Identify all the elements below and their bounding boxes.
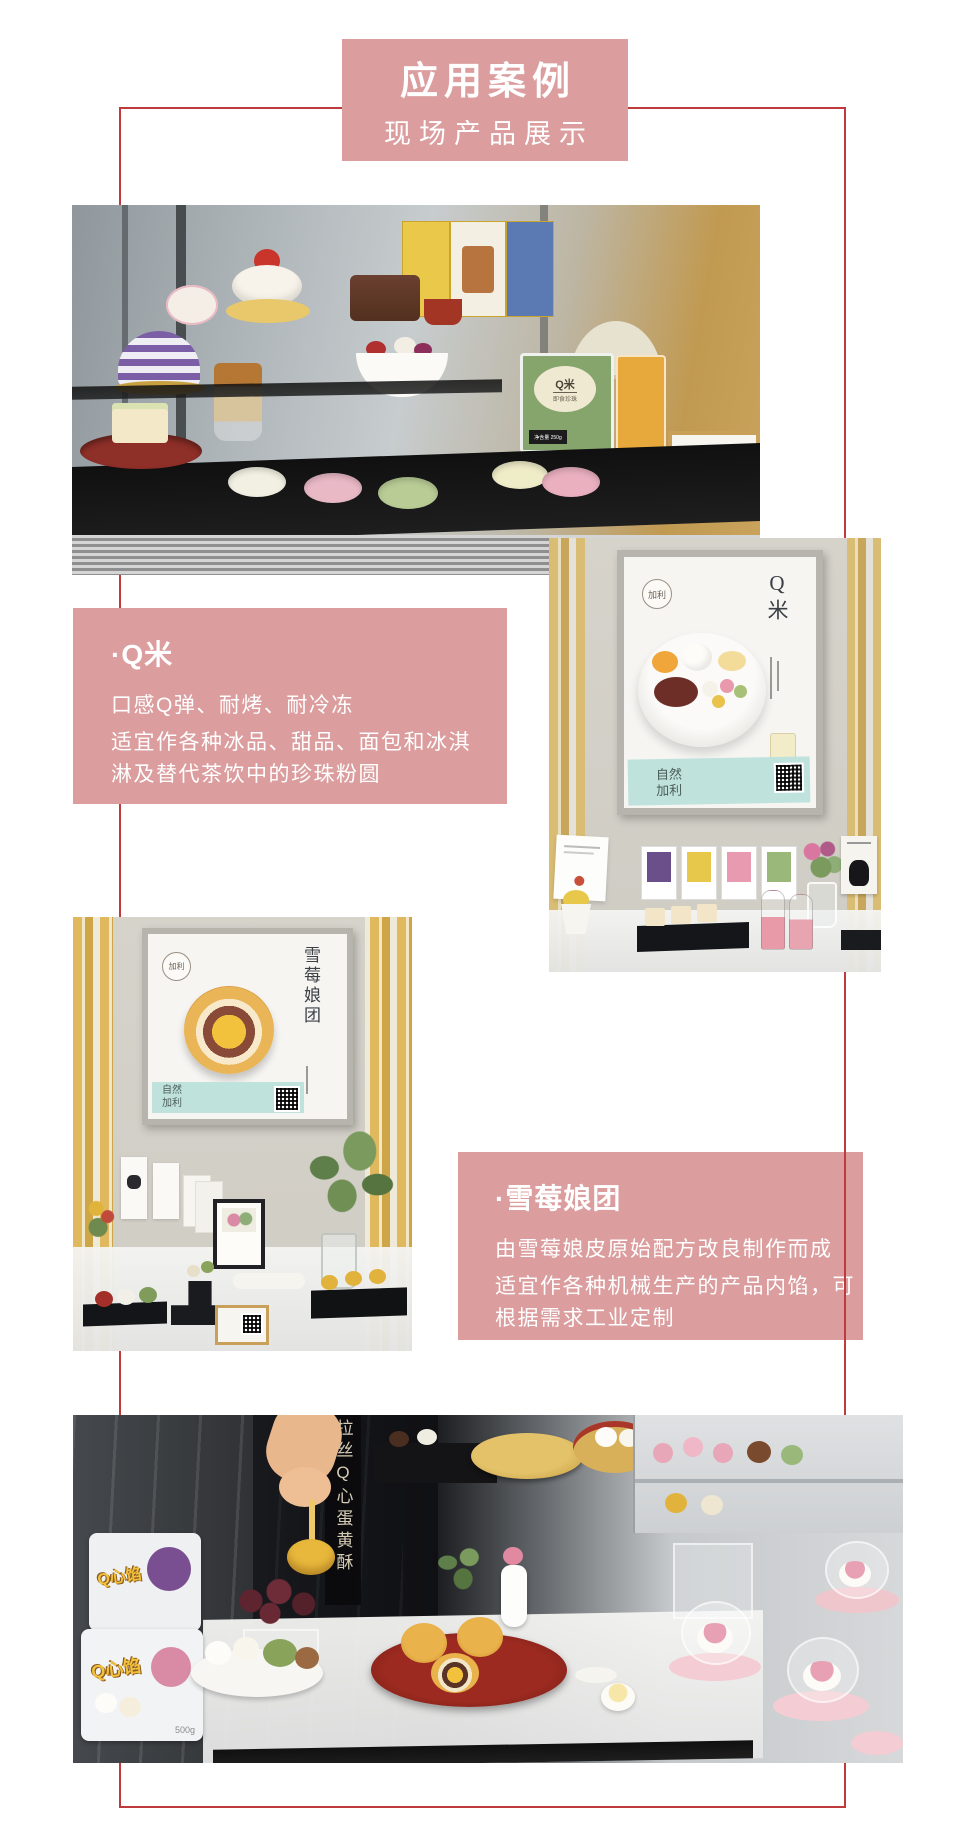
white-petit	[417, 1429, 437, 1445]
mochi-disc-pink	[304, 473, 362, 503]
mango-cubes	[652, 651, 678, 673]
gold-bread	[471, 1433, 583, 1479]
card-line	[564, 851, 594, 855]
pack-color	[647, 852, 671, 882]
pack-color	[727, 852, 751, 882]
flower-bouquet	[799, 836, 843, 888]
right-display-case	[633, 1415, 903, 1533]
white-mochi-ball	[205, 1641, 231, 1665]
package-swirl	[147, 1547, 191, 1591]
package-weight-tag: 净含量 250g	[529, 430, 567, 444]
package-oval-label: Q米 即食珍珠	[534, 366, 596, 412]
yellow-mini-cake	[345, 1271, 362, 1286]
case-shelf-line	[635, 1479, 903, 1483]
cake-pop	[713, 1443, 733, 1463]
dome-bun	[697, 1623, 733, 1653]
package2-weight: 500g	[175, 1725, 195, 1735]
pink-ball	[720, 679, 734, 693]
hanging-card	[121, 1157, 147, 1219]
green-plant	[289, 1123, 407, 1235]
red-mochi	[95, 1291, 113, 1307]
poster-title-text: 雪莓娘团	[301, 946, 320, 1026]
white-mochi-ball	[233, 1637, 259, 1661]
brand-logo: 加利	[162, 952, 191, 981]
qmi-description-block: ·Q米 口感Q弹、耐烤、耐冷冻 适宜作各种冰品、甜品、面包和冰淇淋及替代茶饮中的…	[73, 608, 507, 804]
cupcake-cup	[561, 904, 591, 934]
mascot-graphic	[849, 860, 869, 886]
page-subtitle: 现场产品展示	[376, 112, 594, 151]
pulled-bun	[287, 1539, 335, 1575]
band-slogan: 自然加利	[656, 767, 686, 800]
brand-logo: 加利	[642, 579, 672, 609]
screen-picture	[462, 246, 495, 293]
hanging-card	[153, 1163, 179, 1219]
yellow-ball	[712, 695, 725, 708]
page-header: 应用案例 现场产品展示	[342, 39, 628, 161]
package-sublabel-text: 即食珍珠	[553, 392, 577, 403]
chocolate-donut	[747, 1441, 771, 1463]
caramel-parfait	[214, 363, 262, 441]
qr-code	[274, 1086, 300, 1112]
pink-drink-glass	[789, 894, 813, 950]
page: 应用案例 现场产品展示	[0, 0, 964, 1846]
green-mochi	[139, 1287, 157, 1303]
hanging-pack-pink	[721, 846, 757, 900]
qxin-package-top: Q心馅	[89, 1533, 201, 1631]
cake-pop	[653, 1443, 673, 1463]
pack-color	[767, 852, 791, 882]
package-blob	[151, 1647, 191, 1687]
egg-yolk-pastry	[457, 1617, 503, 1657]
poster-teal-band: 自然加利	[152, 1082, 304, 1113]
black-tray-right	[311, 1287, 407, 1318]
skewer-ball	[201, 1261, 214, 1273]
bud-vase	[501, 1565, 527, 1627]
qxin-package-bottom: Q心馅 500g	[81, 1629, 203, 1741]
cube-cake	[671, 906, 691, 924]
choc-petit	[389, 1431, 409, 1447]
caption-bar	[306, 1066, 308, 1094]
ice-cream-ball	[682, 643, 712, 671]
mini-tart	[665, 1493, 687, 1513]
greenery-sprig	[429, 1541, 491, 1595]
sign-line	[847, 842, 871, 844]
wooden-qr-sign	[215, 1305, 269, 1345]
dome-bun	[803, 1661, 841, 1691]
cupcake	[559, 890, 593, 938]
package-mochi-graphic	[119, 1697, 141, 1717]
photo-qmi-poster-wall: 加利 Q米 自然加利	[549, 538, 881, 972]
poster-title-text: Q米	[765, 571, 789, 624]
qmi-poster-frame: 加利 Q米 自然加利	[617, 550, 823, 815]
dome-bun	[839, 1561, 871, 1587]
brown-mochi-ball	[295, 1647, 319, 1669]
black-tray-left	[83, 1302, 167, 1327]
pink-fan-tray	[851, 1731, 903, 1755]
board-photo	[222, 1208, 256, 1232]
green-ball	[734, 685, 747, 698]
sign-card	[218, 1308, 266, 1342]
mochi-bun-photo	[184, 986, 274, 1074]
mochi-disc-white	[228, 467, 286, 497]
package2-label: Q心馅	[89, 1652, 142, 1685]
sauce-dish	[575, 1667, 617, 1683]
brand-logo-text: 加利	[648, 588, 666, 601]
red-beans	[654, 677, 698, 707]
black-tray-cakes	[637, 922, 749, 952]
yellow-mini-cake	[369, 1269, 386, 1284]
cake-base	[226, 299, 310, 323]
package-label-text: Q米	[555, 376, 575, 392]
pack-color	[687, 852, 711, 882]
card-motif	[127, 1175, 141, 1189]
fruit-cake-slice	[112, 403, 168, 443]
small-white-bun	[601, 1683, 635, 1711]
pink-dot-cake	[166, 285, 218, 325]
xuemei-poster-frame: 加利 雪莓娘团 自然加利	[142, 928, 353, 1125]
qr-code	[774, 763, 805, 794]
skewer-ball	[187, 1265, 200, 1277]
chocolate-cake	[350, 275, 420, 321]
poster-title-vertical: Q米	[762, 571, 792, 651]
matcha-bun	[781, 1445, 803, 1465]
hand	[279, 1467, 331, 1507]
dessert-bowl-photo	[638, 633, 766, 747]
caption-bar	[770, 657, 772, 699]
matcha-mound	[263, 1639, 297, 1667]
photo-xuemei-poster-wall: 加利 雪莓娘团 自然加利	[73, 917, 412, 1351]
qmi-block-line2: 适宜作各种冰品、甜品、面包和冰淇淋及替代茶饮中的珍珠粉圆	[111, 727, 489, 791]
purple-striped-dessert	[118, 331, 200, 387]
qmi-block-title: ·Q米	[111, 638, 489, 672]
small-flower-arrangement	[81, 1195, 119, 1249]
cake-pop	[683, 1437, 703, 1457]
card-stamp	[574, 876, 585, 887]
photo-bottom-display: 拉丝Q心蛋黄酥 Q心馅 Q心馅 500g	[73, 1415, 903, 1763]
package1-label: Q心馅	[96, 1560, 143, 1590]
photo-display-case: Q米 即食珍珠 净含量 250g 加利Q米	[72, 205, 760, 575]
mini-dessert-tray	[841, 930, 881, 950]
white-mochi	[117, 1289, 135, 1305]
mochi-disc-cream	[492, 461, 548, 489]
orange-package	[616, 355, 666, 451]
white-mochi-plate	[233, 1273, 305, 1289]
hanging-pack-yellow	[681, 846, 717, 900]
berry-cluster	[223, 1573, 335, 1635]
framed-photo-board	[213, 1199, 265, 1269]
screen-panel-blue	[506, 221, 554, 317]
strawberry-cream-cake	[224, 249, 312, 325]
mascot-sign	[841, 836, 877, 894]
poster-title-vertical: 雪莓娘团	[298, 946, 323, 1066]
poster-teal-band: 自然加利	[628, 756, 811, 805]
cube-cake	[697, 904, 717, 922]
card-line	[564, 845, 600, 849]
caption-bar	[777, 661, 779, 691]
mini-tart	[701, 1495, 723, 1515]
red-cup	[424, 299, 462, 325]
hanging-pack-purple	[641, 846, 677, 900]
mochi-disc-pink2	[542, 467, 600, 497]
pink-flower	[503, 1547, 523, 1565]
qmi-block-line1: 口感Q弹、耐烤、耐冷冻	[111, 690, 489, 722]
pink-drink-glass	[761, 890, 785, 950]
qmi-bead-package: Q米 即食珍珠 净含量 250g	[520, 353, 614, 453]
rice-ball-in-bowl	[595, 1427, 617, 1447]
mochi-disc-green	[378, 477, 438, 509]
page-title: 应用案例	[394, 50, 576, 105]
brand-logo-text: 加利	[169, 961, 185, 972]
egg-yolk-pastry-cut	[431, 1653, 479, 1693]
cube-cake	[645, 908, 665, 926]
qr-code	[241, 1313, 263, 1335]
package-mochi-graphic	[95, 1693, 117, 1713]
banana-slices	[718, 651, 746, 671]
yellow-mini-cake	[321, 1275, 338, 1290]
band-slogan: 自然加利	[162, 1085, 185, 1110]
